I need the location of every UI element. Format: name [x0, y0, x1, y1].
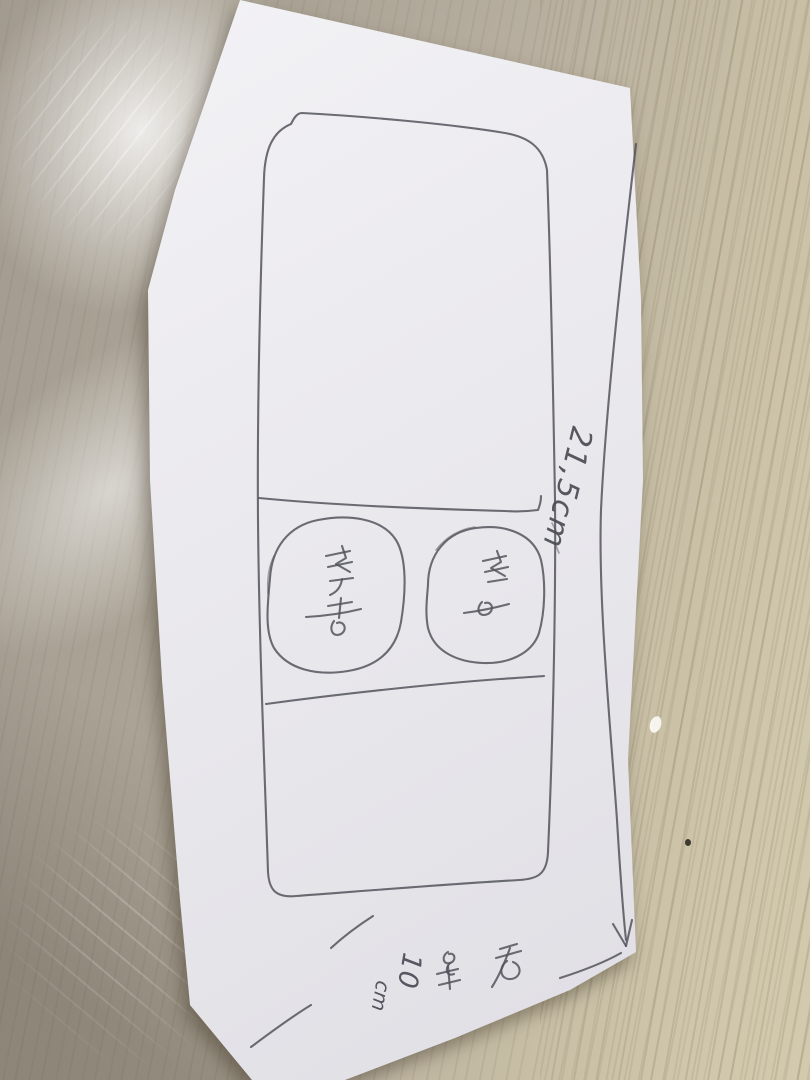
rect-outline [258, 113, 555, 896]
width-dimension-word-handwriting [437, 944, 521, 989]
divider-line-top [259, 496, 541, 511]
left-circle [268, 517, 405, 672]
left-circle-label-handwriting [306, 546, 361, 635]
right-circle [426, 527, 544, 663]
divider-line-bottom [266, 676, 544, 704]
pencil-sketch [0, 0, 810, 1080]
photo-canvas: 21,5cm 10 cm [0, 0, 810, 1080]
length-dimension-line [601, 144, 636, 946]
width-dimension-value: 10 [391, 950, 428, 991]
right-circle-label-handwriting [464, 551, 509, 615]
width-dimension-line [251, 916, 621, 1047]
